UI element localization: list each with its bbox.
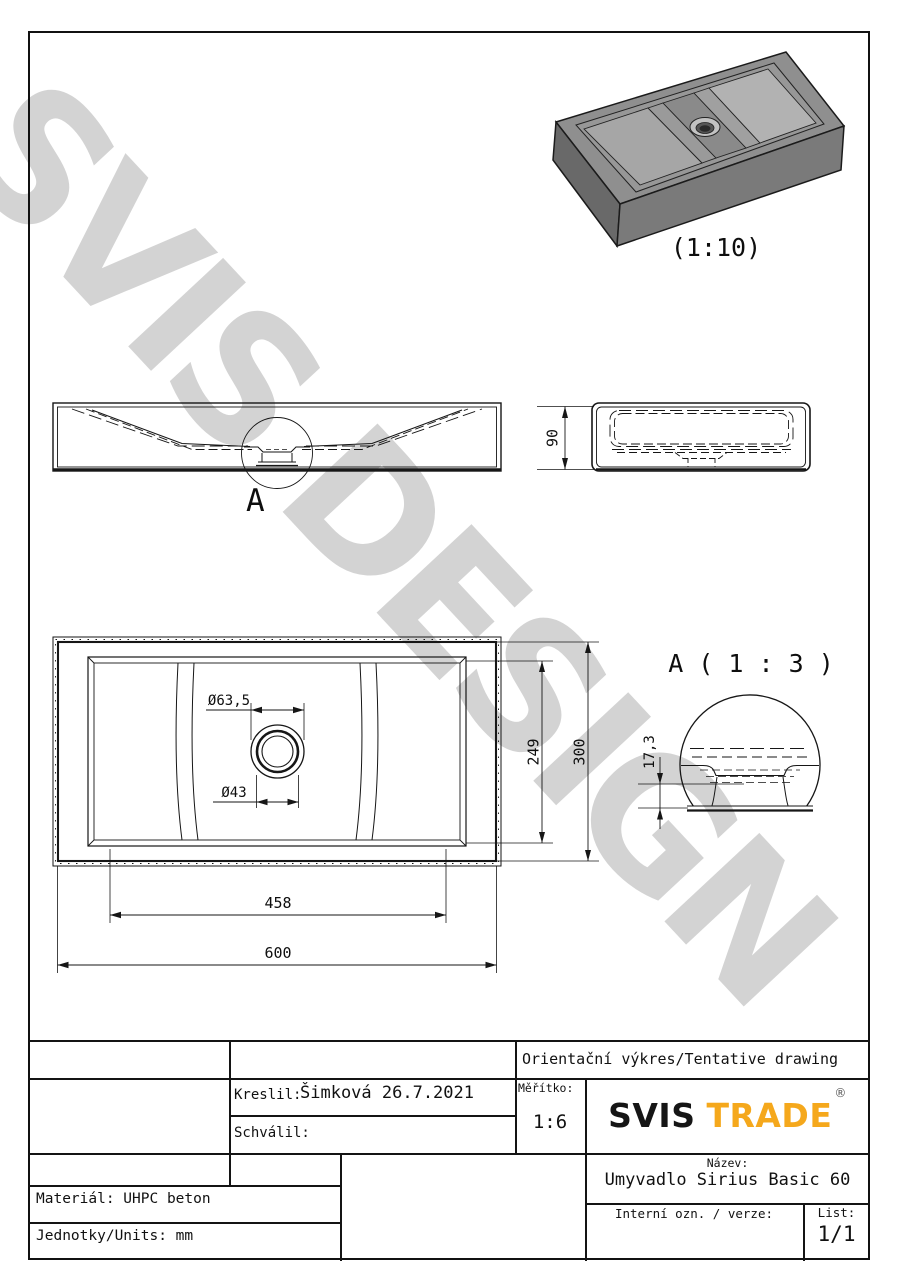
plan-view: Ø63,5 Ø43 249 300 xyxy=(53,637,599,973)
logo-primary: SVIS xyxy=(608,1096,695,1135)
dim-drain-inner: Ø43 xyxy=(221,785,246,801)
name-label: Název: xyxy=(585,1156,870,1170)
dim-detail-depth: 17,3 xyxy=(642,735,658,769)
side-view: 90 xyxy=(537,403,810,471)
dim-height-90: 90 xyxy=(544,429,562,447)
svis-trade-logo: SVIS TRADE ® xyxy=(585,1078,870,1153)
logo-secondary: TRADE xyxy=(706,1096,832,1135)
dim-inner-length-458: 458 xyxy=(264,894,291,912)
scale-value: 1:6 xyxy=(515,1111,585,1133)
detail-a-title: A ( 1 : 3 ) xyxy=(668,649,834,678)
scale-label: Měřítko: xyxy=(518,1081,573,1095)
grid-line xyxy=(28,1153,870,1155)
detail-a-view: A ( 1 : 3 ) 17,3 xyxy=(638,649,834,829)
grid-line xyxy=(229,1115,515,1117)
dim-inner-width-249: 249 xyxy=(525,738,543,765)
internal-designation-label: Interní ozn. / verze: xyxy=(585,1206,803,1221)
isometric-view: (1:10) xyxy=(553,52,844,262)
registered-mark-icon: ® xyxy=(834,1086,847,1100)
material-label: Materiál: UHPC beton xyxy=(36,1191,211,1207)
grid-line xyxy=(28,1185,340,1187)
drawn-by-value: Šimková 26.7.2021 xyxy=(300,1083,474,1103)
drawing-sheet: SVIS DESIGN (1:10) xyxy=(0,0,900,1288)
drawing-type-label: Orientační výkres/Tentative drawing xyxy=(522,1050,838,1068)
grid-line xyxy=(515,1040,517,1153)
name-value: Umyvadlo Sirius Basic 60 xyxy=(585,1170,870,1190)
grid-line xyxy=(340,1153,342,1261)
sheet-label: List: xyxy=(803,1205,870,1220)
units-label: Jednotky/Units: mm xyxy=(36,1228,193,1244)
drawn-by-label: Kreslil: xyxy=(234,1087,301,1103)
title-block: Orientační výkres/Tentative drawing Kres… xyxy=(28,1040,870,1261)
approved-by-label: Schválil: xyxy=(234,1125,310,1141)
dim-length-600: 600 xyxy=(264,944,291,962)
detail-marker-label: A xyxy=(246,483,265,519)
grid-line xyxy=(28,1222,340,1224)
grid-line xyxy=(229,1040,231,1185)
dim-width-300: 300 xyxy=(571,738,589,765)
isometric-scale-caption: (1:10) xyxy=(671,233,761,262)
dim-drain-outer: Ø63,5 xyxy=(208,693,250,709)
detail-circle xyxy=(242,418,313,489)
grid-line xyxy=(28,1040,870,1042)
front-view: A xyxy=(53,403,501,519)
sheet-value: 1/1 xyxy=(803,1222,870,1246)
